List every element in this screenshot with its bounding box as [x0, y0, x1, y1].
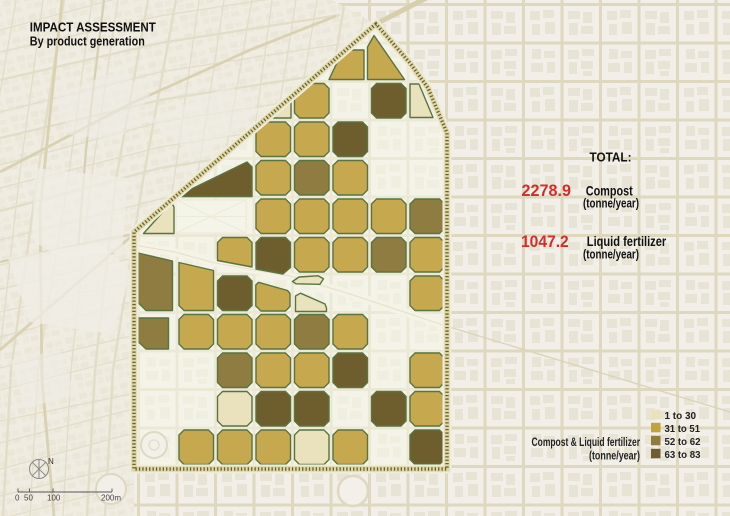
- svg-text:1 to 30: 1 to 30: [665, 410, 697, 422]
- svg-text:31 to 51: 31 to 51: [665, 423, 701, 435]
- svg-text:(tonne/year): (tonne/year): [583, 196, 639, 211]
- svg-text:52 to 62: 52 to 62: [665, 436, 701, 448]
- svg-text:By product generation: By product generation: [30, 35, 145, 49]
- svg-text:(tonne/year): (tonne/year): [583, 247, 639, 262]
- svg-text:50: 50: [24, 494, 33, 503]
- svg-text:(tonne/year): (tonne/year): [589, 451, 640, 463]
- svg-text:N: N: [48, 457, 54, 466]
- svg-text:200m: 200m: [101, 494, 121, 503]
- svg-text:0: 0: [15, 494, 20, 503]
- svg-text:63 to 83: 63 to 83: [665, 449, 701, 461]
- svg-text:TOTAL:: TOTAL:: [590, 150, 632, 165]
- svg-text:1047.2: 1047.2: [521, 232, 569, 251]
- svg-text:Compost & Liquid fertilizer: Compost & Liquid fertilizer: [532, 437, 641, 449]
- svg-text:2278.9: 2278.9: [522, 181, 572, 200]
- svg-text:IMPACT ASSESSMENT: IMPACT ASSESSMENT: [30, 21, 156, 35]
- svg-text:100: 100: [47, 494, 61, 503]
